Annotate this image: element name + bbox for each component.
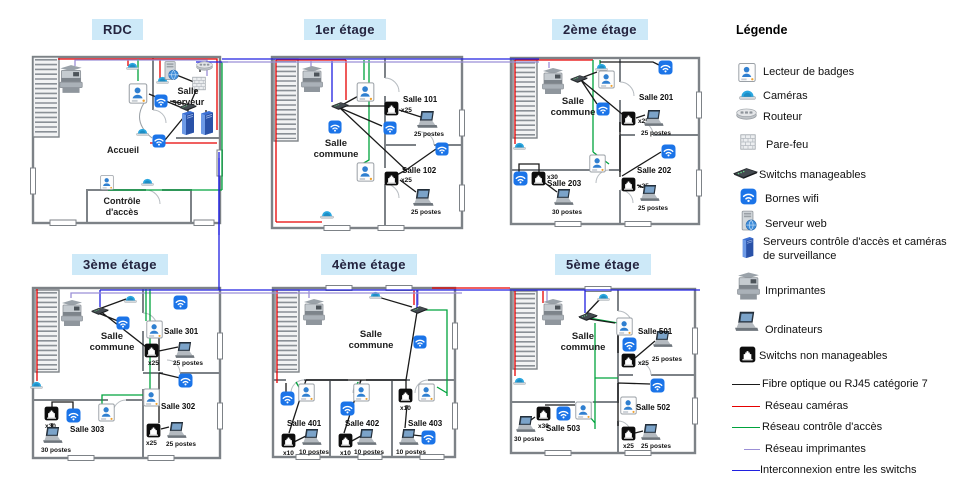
room-label-salle-serveur: Salle serveur	[164, 86, 212, 108]
badge-reader-icon	[589, 154, 606, 173]
room-label-accueil: Accueil	[104, 145, 142, 156]
computer-icon	[301, 428, 324, 447]
printer-icon	[302, 297, 326, 327]
legend-title: Légende	[736, 23, 787, 37]
unmanaged-switch-icon	[739, 346, 756, 363]
switch-count: x25	[401, 107, 412, 114]
printer-icon	[300, 64, 324, 94]
room-label-salle-commune: Salle commune	[82, 331, 142, 354]
badge-reader-icon	[616, 317, 633, 336]
printer-icon	[736, 270, 761, 302]
unmanaged-switch-icon	[384, 101, 399, 116]
room-label: Salle 301	[164, 327, 198, 336]
badge-reader-icon	[620, 396, 637, 415]
legend-item-wifi-ap: Bornes wifi	[765, 193, 819, 205]
floor-rdc: RDC Salle serveur	[28, 50, 228, 235]
badge-reader-icon	[146, 320, 163, 339]
badge-reader-icon	[356, 162, 375, 182]
wifi-ap-icon	[661, 144, 676, 159]
camera-icon	[739, 87, 756, 100]
wifi-ap-icon	[66, 408, 81, 423]
room-label: Salle 102	[402, 166, 436, 175]
unmanaged-switch-icon	[621, 353, 636, 368]
unmanaged-switch-icon	[144, 343, 159, 358]
legend-line-interconnect-label: Interconnexion entre les switchs	[760, 464, 917, 476]
room-label: Salle 201	[639, 93, 673, 102]
managed-switch-icon	[569, 73, 589, 83]
workstation-count: 25 postes	[167, 360, 209, 367]
computer-icon	[356, 428, 379, 447]
room-label: Salle 203	[547, 179, 581, 188]
wifi-ap-icon	[650, 378, 665, 393]
router-icon	[196, 60, 213, 71]
floor-title-4eme: 4ème étage	[321, 254, 417, 275]
camera-icon	[513, 375, 526, 385]
computer-icon	[553, 188, 576, 207]
badge-reader-icon	[353, 383, 370, 402]
computer-icon	[515, 415, 538, 434]
camera-icon	[141, 176, 154, 186]
unmanaged-switch-icon	[621, 177, 636, 192]
wifi-ap-icon	[513, 171, 528, 186]
printer-icon	[541, 66, 565, 96]
managed-switch-icon	[90, 305, 110, 315]
room-label: Salle 101	[403, 95, 437, 104]
camera-icon	[30, 379, 43, 389]
unmanaged-switch-icon	[384, 171, 399, 186]
computer-icon	[416, 110, 440, 130]
floor-title-5eme: 5ème étage	[555, 254, 651, 275]
badge-reader-icon	[598, 70, 615, 89]
computer-icon	[643, 109, 666, 128]
workstation-count: 10 postes	[390, 449, 432, 456]
room-label: Salle 402	[345, 419, 379, 428]
computer-icon	[174, 341, 197, 360]
managed-switch-icon	[732, 165, 759, 179]
room-label-salle-commune: Salle commune	[553, 331, 613, 354]
camera-icon	[320, 208, 334, 219]
switch-count: x25	[146, 440, 157, 447]
wifi-ap-icon	[383, 121, 397, 135]
computer-icon	[42, 426, 65, 445]
room-label: Salle 202	[637, 166, 671, 175]
floor-3eme-etage: 3ème étage x25 25 postes x25 2	[28, 283, 228, 465]
room-label: Salle 302	[161, 402, 195, 411]
surveillance-server-icon	[199, 110, 215, 136]
switch-count: x25	[148, 360, 159, 367]
unmanaged-switch-icon	[281, 433, 296, 448]
wifi-ap-icon	[173, 295, 188, 310]
wifi-ap-icon	[413, 335, 427, 349]
room-label: Salle 403	[408, 419, 442, 428]
legend-line-access-label: Réseau contrôle d'accès	[762, 421, 882, 433]
wifi-ap-icon	[116, 316, 130, 330]
floor-title-rdc: RDC	[92, 19, 143, 40]
wifi-ap-icon	[280, 391, 295, 406]
switch-count: x25	[401, 177, 412, 184]
room-label: Salle 401	[287, 419, 321, 428]
floor-title-1er: 1er étage	[304, 19, 386, 40]
printer-icon	[58, 63, 84, 95]
legend-line-printers	[744, 449, 760, 450]
legend-line-access	[732, 427, 760, 428]
computer-icon	[639, 184, 662, 203]
managed-switch-icon	[577, 310, 599, 321]
legend-line-printers-label: Réseau imprimantes	[765, 443, 866, 455]
floor-title-3eme: 3ème étage	[72, 254, 168, 275]
wifi-ap-icon	[435, 142, 449, 156]
camera-icon	[369, 289, 382, 299]
unmanaged-switch-icon	[621, 111, 636, 126]
room-label: Salle 503	[546, 424, 580, 433]
workstation-count: 25 postes	[635, 443, 677, 450]
badge-reader-icon	[356, 82, 375, 102]
badge-reader-icon	[738, 62, 756, 83]
wifi-ap-icon	[556, 406, 571, 421]
room-label: Salle 502	[636, 403, 670, 412]
managed-switch-icon	[409, 304, 429, 314]
computer-icon	[640, 423, 663, 442]
workstation-count: 25 postes	[632, 205, 674, 212]
legend-line-cameras	[732, 406, 760, 407]
access-control-server-icon	[741, 234, 755, 261]
room-label: Salle 501	[638, 327, 672, 336]
unmanaged-switch-icon	[531, 171, 546, 186]
workstation-count: 25 postes	[635, 130, 677, 137]
workstation-count: 30 postes	[546, 209, 588, 216]
wifi-ap-icon	[622, 337, 637, 352]
printer-icon	[60, 298, 84, 328]
badge-reader-icon	[98, 403, 115, 422]
badge-reader-icon	[298, 383, 315, 402]
wifi-ap-icon	[421, 430, 436, 445]
legend-item-firewall: Pare-feu	[766, 139, 808, 151]
legend-item-badge-reader: Lecteur de badges	[763, 66, 854, 78]
room-label-controle-acces: Contrôle d'accès	[92, 196, 152, 218]
legend-line-interconnect	[732, 470, 760, 471]
computer-icon	[412, 188, 436, 208]
workstation-count: 30 postes	[508, 436, 550, 443]
web-server-icon	[739, 210, 757, 232]
floor-plan-5eme	[505, 283, 702, 461]
legend-panel: Légende Lecteur de badges Caméras Routeu…	[730, 20, 953, 488]
floor-title-2eme: 2ème étage	[552, 19, 648, 40]
legend-item-unmanaged-switch: Switchs non manageables	[759, 350, 887, 362]
router-icon	[736, 107, 757, 120]
badge-reader-icon	[418, 383, 435, 402]
camera-icon	[597, 291, 610, 301]
unmanaged-switch-icon	[536, 406, 551, 421]
web-server-icon	[162, 58, 179, 84]
badge-reader-icon	[575, 401, 592, 420]
wifi-ap-icon	[178, 373, 193, 388]
workstation-count: 25 postes	[160, 441, 202, 448]
unmanaged-switch-icon	[44, 406, 59, 421]
switch-count: x25	[623, 443, 634, 450]
legend-item-web-server: Serveur web	[765, 218, 827, 230]
workstation-count: 30 postes	[35, 447, 77, 454]
legend-line-fiber	[732, 384, 760, 385]
legend-item-printers: Imprimantes	[765, 285, 826, 297]
camera-icon	[126, 60, 139, 70]
unmanaged-switch-icon	[146, 423, 161, 438]
legend-item-cameras: Caméras	[763, 90, 808, 102]
room-label: Salle 303	[70, 425, 104, 434]
switch-count: x10	[400, 405, 411, 412]
access-control-server-icon	[180, 110, 196, 136]
legend-item-router: Routeur	[763, 111, 802, 123]
wifi-ap-icon	[658, 60, 673, 75]
unmanaged-switch-icon	[621, 426, 636, 441]
legend-line-cameras-label: Réseau caméras	[765, 400, 848, 412]
workstation-count: 10 postes	[293, 449, 335, 456]
unmanaged-switch-icon	[338, 433, 353, 448]
computer-icon	[398, 428, 421, 447]
badge-reader-icon	[100, 174, 114, 191]
wifi-ap-icon	[328, 120, 342, 134]
computer-icon	[166, 421, 189, 440]
network-floorplan-diagram: RDC Salle serveur	[0, 0, 953, 488]
legend-item-access-servers: Serveurs contrôle d'accès et caméras de …	[763, 236, 951, 264]
badge-reader-icon	[143, 388, 160, 407]
workstation-count: 10 postes	[348, 449, 390, 456]
room-label-salle-commune: Salle commune	[306, 138, 366, 161]
badge-reader-icon	[128, 83, 148, 104]
wifi-ap-icon	[152, 134, 166, 148]
workstation-count: 25 postes	[408, 131, 450, 138]
workstation-count: 25 postes	[646, 356, 688, 363]
managed-switch-icon	[330, 100, 350, 110]
camera-icon	[513, 140, 526, 150]
firewall-icon	[740, 134, 756, 150]
room-label-salle-commune: Salle commune	[543, 96, 603, 119]
unmanaged-switch-icon	[398, 388, 413, 403]
room-label-salle-commune: Salle commune	[341, 329, 401, 352]
camera-icon	[124, 293, 137, 303]
computer-icon	[734, 310, 761, 334]
legend-item-managed-switch: Switchs manageables	[759, 169, 866, 181]
floor-2eme-etage: 2ème étage x25 25 postes x25	[505, 52, 705, 232]
legend-line-fiber-label: Fibre optique ou RJ45 catégorie 7	[762, 378, 928, 390]
printer-icon	[541, 297, 565, 327]
floor-4eme-etage: 4ème étage x10 10 postes x10	[266, 283, 466, 465]
floor-1er-etage: 1er étage x25 25 postes x25 25 post	[266, 50, 471, 235]
workstation-count: 25 postes	[405, 209, 447, 216]
wifi-ap-icon	[340, 401, 355, 416]
camera-icon	[136, 126, 149, 136]
legend-item-computers: Ordinateurs	[765, 324, 822, 336]
wifi-ap-icon	[740, 188, 757, 205]
floor-5eme-etage: 5ème étage x25 25 postes x25	[505, 283, 702, 461]
